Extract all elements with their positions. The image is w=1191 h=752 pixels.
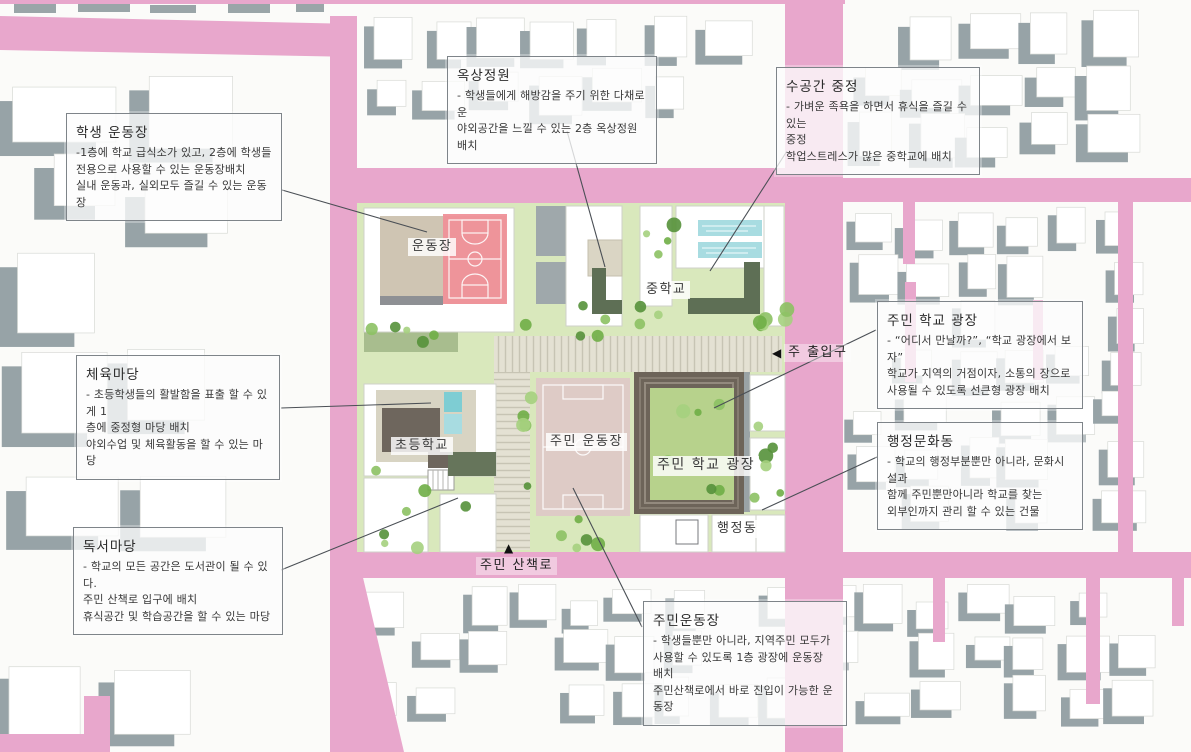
annotation-water-courtyard: 수공간 중정 - 가벼운 족욕을 하면서 휴식을 즐길 수 있는 중정 학업스트… bbox=[776, 67, 980, 175]
admin-court bbox=[676, 520, 698, 544]
elementary-pool bbox=[444, 414, 462, 434]
road-top-edge bbox=[0, 0, 845, 4]
walk-arrow-icon: ▲ bbox=[504, 542, 513, 554]
label-middle-school: 중학교 bbox=[642, 281, 690, 299]
sunken-plaza bbox=[634, 372, 744, 514]
annotation-title: 학생 운동장 bbox=[76, 121, 272, 141]
walkway-vertical bbox=[494, 372, 530, 550]
annotation-rooftop-garden: 옥상정원 - 학생들에게 해방감을 주기 위한 다채로운 야외공간을 느낄 수 … bbox=[447, 56, 657, 164]
elementary-building-2 bbox=[364, 478, 428, 552]
gym-edge-strip bbox=[380, 296, 443, 305]
annotation-resident-plaza: 주민 학교 광장 - “어디서 만날까?”, “학교 광장에서 보자” 학교가 … bbox=[877, 301, 1083, 409]
main-entrance-arrow-icon: ◀ bbox=[772, 347, 781, 359]
roof-block-1 bbox=[536, 206, 566, 256]
road-stub-5 bbox=[1086, 578, 1100, 704]
label-elementary-school: 초등학교 bbox=[391, 437, 453, 455]
road-left-widening bbox=[357, 552, 404, 752]
road-left-vertical bbox=[330, 16, 357, 752]
road-right-vertical-2 bbox=[1118, 202, 1133, 554]
label-resident-school-plaza: 주민 학교 광장 bbox=[653, 456, 759, 476]
road-top-left bbox=[0, 16, 357, 57]
annotation-title: 옥상정원 bbox=[457, 64, 647, 84]
road-stub-6 bbox=[1172, 578, 1184, 626]
annotation-body: - 초등학생들의 활발함을 표출 할 수 있게 1 층에 중정형 마당 배치 야… bbox=[86, 387, 270, 470]
skylight-block bbox=[444, 392, 462, 412]
label-playground: 운동장 bbox=[408, 238, 456, 256]
middle-school-wing-2 bbox=[688, 298, 760, 314]
annotation-body: - 가벼운 족욕을 하면서 휴식을 즐길 수 있는 중정 학업스트레스가 많은 … bbox=[786, 99, 970, 165]
annotation-body: - 학생들뿐만 아니라, 지역주민 모두가 사용할 수 있도록 1층 광장에 운… bbox=[653, 633, 837, 716]
roof-block-2 bbox=[536, 262, 566, 304]
top-edge-buildings bbox=[14, 3, 324, 13]
annotation-body: - 학교의 모든 공간은 도서관이 될 수 있다. 주민 산책로 입구에 배치 … bbox=[83, 559, 273, 625]
green-roof-wing-2 bbox=[592, 300, 622, 314]
annotation-title: 주민 학교 광장 bbox=[887, 309, 1073, 329]
annotation-admin-culture: 행정문화동 - 학교의 행정부분뿐만 아니라, 문화시설과 함께 주민뿐만아니라… bbox=[877, 422, 1083, 530]
walkway-horizontal bbox=[494, 336, 782, 372]
road-above-site bbox=[357, 168, 785, 204]
annotation-reading-yard: 독서마당 - 학교의 모든 공간은 도서관이 될 수 있다. 주민 산책로 입구… bbox=[73, 527, 283, 635]
road-top-right bbox=[843, 178, 1191, 202]
annotation-title: 체육마당 bbox=[86, 363, 270, 383]
annotation-title: 수공간 중정 bbox=[786, 75, 970, 95]
annotation-sports-yard: 체육마당 - 초등학생들의 활발함을 표출 할 수 있게 1 층에 중정형 마당… bbox=[76, 355, 280, 480]
label-resident-field: 주민 운동장 bbox=[546, 433, 627, 451]
label-admin-building: 행정동 bbox=[713, 520, 761, 538]
annotation-title: 독서마당 bbox=[83, 535, 273, 555]
label-resident-walk: 주민 산책로 bbox=[476, 557, 557, 575]
annotation-resident-field: 주민운동장 - 학생들뿐만 아니라, 지역주민 모두가 사용할 수 있도록 1층… bbox=[643, 601, 847, 726]
annotation-student-playground: 학생 운동장 -1층에 학교 급식소가 있고, 2층에 학생들 전용으로 사용할… bbox=[66, 113, 282, 221]
annotation-body: - “어디서 만날까?”, “학교 광장에서 보자” 학교가 지역의 거점이자,… bbox=[887, 333, 1073, 399]
annotation-body: - 학교의 행정부분뿐만 아니라, 문화시설과 함께 주민뿐만아니라 학교를 찾… bbox=[887, 454, 1073, 520]
annotation-title: 주민운동장 bbox=[653, 609, 837, 629]
label-main-entrance: 주 출입구 bbox=[784, 344, 851, 362]
annotation-body: - 학생들에게 해방감을 주기 위한 다채로운 야외공간을 느낄 수 있는 2층… bbox=[457, 88, 647, 154]
reading-yard-green-wing bbox=[448, 452, 496, 476]
road-bottom-left-horizontal bbox=[0, 734, 110, 752]
annotation-body: -1층에 학교 급식소가 있고, 2층에 학생들 전용으로 사용할 수 있는 운… bbox=[76, 145, 272, 211]
urban-school-masterplan-page: { "plan_labels": { "playground": "운동장", … bbox=[0, 0, 1191, 752]
road-stub-4 bbox=[933, 578, 945, 642]
road-stub-1 bbox=[903, 202, 915, 264]
road-bottom bbox=[330, 552, 1191, 578]
annotation-title: 행정문화동 bbox=[887, 430, 1073, 450]
